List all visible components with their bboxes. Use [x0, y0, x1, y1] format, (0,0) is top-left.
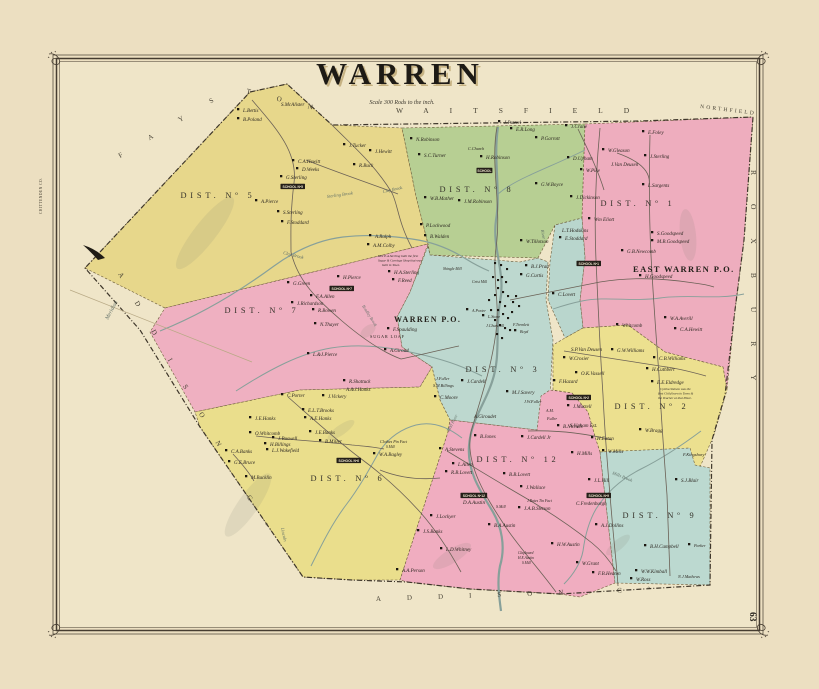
- building-marker: [664, 316, 666, 318]
- building-marker: [639, 274, 641, 276]
- owner-label: E.Stoddard: [564, 237, 588, 242]
- note-label: built in Town.: [382, 263, 400, 267]
- building-marker: [642, 130, 644, 132]
- building-marker: [575, 371, 577, 373]
- owner-label: A.M.Colby: [372, 244, 395, 249]
- owner-label: W.Pike: [586, 169, 601, 174]
- owner-label: J.Dickinson: [576, 196, 600, 201]
- owner-label: D.Weeks: [301, 168, 319, 173]
- building-marker: [551, 542, 553, 544]
- building-marker: [553, 379, 555, 381]
- building-marker: [272, 436, 274, 438]
- owner-label: A.Pierce: [260, 200, 279, 205]
- building-marker: [510, 127, 512, 129]
- building-marker: [466, 308, 468, 310]
- owner-label: W.Mills: [608, 450, 623, 455]
- owner-label: L.Allen: [457, 463, 473, 468]
- building-marker: [504, 327, 506, 329]
- owner-label: H.Pierce: [342, 276, 362, 281]
- building-marker: [497, 309, 499, 311]
- building-marker: [616, 323, 618, 325]
- building-marker: [506, 268, 508, 270]
- owner-label: S.Mill: [496, 504, 507, 509]
- owner-label: J.Vickery: [328, 395, 347, 400]
- building-marker: [602, 148, 604, 150]
- building-marker: [312, 308, 314, 310]
- owner-label: G.Curtis: [526, 274, 543, 279]
- building-marker: [518, 305, 520, 307]
- owner-label: J.E.Banks: [315, 431, 335, 436]
- owner-label: W.Tillotson: [526, 240, 549, 245]
- building-marker: [567, 156, 569, 158]
- owner-label: H.E.Austin: [517, 556, 534, 560]
- owner-label: S.M.Billings: [433, 383, 454, 388]
- owner-label: W.Gleason: [608, 149, 630, 154]
- building-marker: [387, 327, 389, 329]
- building-marker: [591, 436, 593, 438]
- owner-label: C.Fredenburgh: [576, 502, 607, 507]
- owner-label: W.B.Mather: [430, 197, 454, 202]
- building-marker: [488, 523, 490, 525]
- building-marker: [497, 279, 499, 281]
- school-label: SCHOOL Nº1: [577, 261, 602, 266]
- building-marker: [512, 301, 514, 303]
- building-marker: [424, 196, 426, 198]
- owner-label: J.Tucker: [349, 144, 366, 149]
- owner-label: W.A.Averill: [670, 317, 693, 322]
- building-marker: [504, 305, 506, 307]
- building-marker: [440, 547, 442, 549]
- building-marker: [651, 231, 653, 233]
- building-marker: [296, 167, 298, 169]
- building-marker: [580, 168, 582, 170]
- owner-label: J.M.Robinson: [464, 200, 492, 205]
- owner-label: P.Lockwood: [425, 224, 451, 229]
- owner-label: A.M.: [545, 408, 554, 413]
- svg-text:SCHOOL Nº12: SCHOOL Nº12: [463, 494, 485, 498]
- owner-label: S.P.Van Deusen: [571, 348, 603, 353]
- owner-label: M.J.Savery: [511, 391, 535, 396]
- owner-label: P.Garrott: [540, 137, 560, 142]
- building-marker: [571, 451, 573, 453]
- owner-label: N.Thayer: [319, 323, 339, 328]
- owner-label: S.McAlister: [281, 103, 305, 108]
- building-marker: [287, 281, 289, 283]
- building-marker: [611, 348, 613, 350]
- note-label: Mrs E.A.Sterling built the first: [377, 254, 418, 258]
- building-marker: [653, 356, 655, 358]
- building-marker: [651, 239, 653, 241]
- building-marker: [482, 314, 484, 316]
- owner-label: H.A.Sterling: [393, 271, 419, 276]
- owner-label: E.R.Long: [515, 128, 535, 133]
- owner-label: J.Crane: [571, 125, 588, 130]
- building-marker: [559, 236, 561, 238]
- building-marker: [507, 295, 509, 297]
- owner-label: S.C.Turner: [424, 154, 446, 159]
- owner-label: L.Stone: [487, 314, 500, 319]
- owner-label: E.L.T.Brooks: [307, 409, 334, 414]
- building-marker: [497, 287, 499, 289]
- owner-label: N.Robinson: [415, 138, 440, 143]
- building-marker: [474, 434, 476, 436]
- building-marker: [302, 408, 304, 410]
- owner-label: Boyd: [520, 329, 529, 334]
- owner-label: A.&J.Hanks: [345, 388, 370, 393]
- owner-label: C.Lovett: [558, 293, 576, 298]
- owner-label: F.Tremlett: [512, 322, 530, 327]
- district-label-5: DIST. Nº 5: [180, 191, 255, 200]
- svg-text:SCHOOL: SCHOOL: [477, 169, 491, 173]
- owner-label: A.Porter: [471, 308, 486, 313]
- owner-label: S.Sterling: [283, 211, 303, 216]
- building-marker: [445, 470, 447, 472]
- building-marker: [418, 153, 420, 155]
- building-marker: [501, 337, 503, 339]
- building-marker: [280, 175, 282, 177]
- building-marker: [452, 462, 454, 464]
- building-marker: [225, 449, 227, 451]
- building-marker: [499, 301, 501, 303]
- owner-label: L.D.Whitney: [445, 548, 472, 553]
- building-marker: [588, 217, 590, 219]
- owner-label: D.A.Austin: [462, 501, 485, 506]
- building-marker: [576, 561, 578, 563]
- building-marker: [567, 404, 569, 406]
- owner-label: L.Bettis: [242, 109, 258, 114]
- building-marker: [501, 276, 503, 278]
- school-label: SCHOOL Nº2: [567, 395, 592, 400]
- owner-label: C.Moore: [440, 396, 459, 401]
- owner-label: H.Robinson: [485, 156, 510, 161]
- district-label-12: DIST. Nº 12: [476, 455, 559, 464]
- building-marker: [277, 210, 279, 212]
- owner-label: J.Lockyer: [436, 515, 456, 520]
- owner-label: L.&J.Pierce: [312, 353, 338, 358]
- building-marker: [621, 249, 623, 251]
- owner-label: R.Bowen: [317, 309, 336, 314]
- owner-label: J.S.Banks: [423, 530, 442, 535]
- building-marker: [392, 278, 394, 280]
- owner-label: B.Jones: [480, 435, 496, 440]
- owner-label: C.A.Banks: [231, 450, 252, 455]
- building-marker: [304, 416, 306, 418]
- owner-label: B.Miller: [325, 440, 342, 445]
- owner-label: B.J.Pratt: [531, 265, 550, 270]
- building-marker: [266, 448, 268, 450]
- owner-label: B.B.Lovett: [509, 473, 531, 478]
- building-marker: [388, 270, 390, 272]
- owner-label: G.E.Bruce: [234, 461, 256, 466]
- school-label: SCHOOL: [477, 168, 493, 173]
- district-label-6: DIST. Nº 6: [310, 474, 385, 483]
- building-marker: [503, 472, 505, 474]
- owner-label: H.W.Austin: [556, 543, 580, 548]
- owner-label: F.Spaulding: [392, 328, 417, 333]
- note-label: Sugar & Carriage Shop that was: [378, 259, 422, 263]
- owner-label: J.A.B.Stetson: [524, 507, 551, 512]
- building-marker: [237, 117, 239, 119]
- building-marker: [458, 199, 460, 201]
- owner-label: A.Stevens: [444, 448, 464, 453]
- owner-label: M.Bucklin: [250, 476, 272, 481]
- owner-label: A.Giroud: [389, 349, 409, 354]
- owner-label: A.Giroudet: [473, 415, 497, 420]
- building-marker: [588, 478, 590, 480]
- owner-label: J.Wallace: [526, 486, 546, 491]
- building-marker: [373, 452, 375, 454]
- district-label-1: DIST. Nº 1: [600, 199, 675, 208]
- owner-label: A.Ralph: [374, 235, 392, 240]
- building-marker: [369, 149, 371, 151]
- building-marker: [291, 301, 293, 303]
- building-marker: [420, 223, 422, 225]
- owner-label: J.E.Hanks: [255, 417, 276, 422]
- building-marker: [281, 393, 283, 395]
- owner-label: F.Kingsbury: [682, 452, 705, 457]
- building-marker: [439, 447, 441, 449]
- owner-label: Fuller: [546, 416, 557, 421]
- building-marker: [514, 329, 516, 331]
- owner-label: N.J.Mathews: [677, 574, 700, 579]
- building-marker: [507, 317, 509, 319]
- owner-label: J.Van Deusen: [611, 163, 639, 168]
- building-marker: [642, 183, 644, 185]
- building-marker: [651, 380, 653, 382]
- owner-label: R.Buck: [358, 164, 374, 169]
- owner-label: H.Goodspeed: [644, 275, 673, 280]
- district-label-2: DIST. Nº 2: [614, 402, 689, 411]
- building-marker: [498, 120, 500, 122]
- owner-label: W.A.Bagley: [379, 453, 403, 458]
- building-marker: [367, 243, 369, 245]
- building-marker: [492, 276, 494, 278]
- building-marker: [499, 324, 501, 326]
- owner-label: O.Whitcomb: [255, 432, 281, 437]
- building-marker: [500, 264, 502, 266]
- owner-label: B.Nichols: [563, 425, 583, 430]
- owner-label: G.W.Boyce: [541, 183, 564, 188]
- owner-label: Clothes Pin Fact: [380, 439, 408, 444]
- building-marker: [249, 416, 251, 418]
- owner-label: J.Martell: [573, 405, 592, 410]
- building-marker: [644, 544, 646, 546]
- building-marker: [502, 291, 504, 293]
- building-marker: [520, 273, 522, 275]
- owner-label: J.W.Fuller: [524, 399, 542, 404]
- owner-label: W.Bragg: [645, 429, 663, 434]
- building-marker: [520, 239, 522, 241]
- building-marker: [639, 428, 641, 430]
- building-marker: [424, 234, 426, 236]
- building-marker: [322, 394, 324, 396]
- building-marker: [563, 356, 565, 358]
- owner-label: A.E.Hanks: [309, 417, 331, 422]
- building-marker: [245, 475, 247, 477]
- owner-label: B.A.Austin: [494, 524, 516, 529]
- svg-text:SCHOOL Nº5: SCHOOL Nº5: [283, 185, 304, 189]
- owner-label: F.Reed: [397, 279, 412, 284]
- owner-label: B.Poland: [243, 118, 262, 123]
- building-marker: [520, 485, 522, 487]
- building-marker: [384, 348, 386, 350]
- owner-label: J.Richardson: [297, 302, 324, 307]
- building-marker: [410, 137, 412, 139]
- building-marker: [630, 577, 632, 579]
- neighbor-waitsfield: WAITSFIELD: [396, 106, 650, 115]
- owner-label: E.Foley: [647, 131, 664, 136]
- owner-label: B.H.Campbell: [650, 545, 679, 550]
- district-label-8: DIST. Nº 8: [439, 185, 514, 194]
- county-chittenden: CHITTENDEN CO.: [39, 177, 43, 214]
- owner-label: W.Grant: [582, 562, 600, 567]
- owner-label: G.B.Newcomb: [627, 250, 656, 255]
- owner-label: C.Porter: [287, 394, 305, 399]
- svg-text:SCHOOL Nº9: SCHOOL Nº9: [589, 494, 610, 498]
- owner-label: W.Ross: [636, 578, 650, 583]
- warren-po-label: WARREN P.O.: [394, 315, 461, 324]
- building-marker: [635, 569, 637, 571]
- building-marker: [496, 333, 498, 335]
- building-marker: [281, 220, 283, 222]
- owner-label: G.W.Williams: [617, 349, 644, 354]
- owner-label: W.Crosier: [569, 357, 589, 362]
- owner-label: Shingle Mill: [443, 267, 462, 271]
- owner-label: J.Sterling: [650, 155, 670, 160]
- owner-label: D.Upham: [572, 157, 593, 162]
- owner-label: Wm Eliott: [594, 218, 615, 223]
- school-label: SCHOOL Nº5: [281, 184, 306, 189]
- building-marker: [646, 367, 648, 369]
- building-marker: [292, 159, 294, 161]
- owner-label: J.Cardell: [467, 380, 486, 385]
- building-marker: [552, 292, 554, 294]
- building-marker: [535, 182, 537, 184]
- owner-label: H.Billings: [269, 443, 290, 448]
- atlas-page: WARREN WARREN Scale 300 Rods to the inch…: [0, 0, 819, 689]
- owner-label: L.Sargents: [647, 184, 669, 189]
- building-marker: [237, 108, 239, 110]
- building-marker: [557, 424, 559, 426]
- building-marker: [675, 478, 677, 480]
- building-marker: [353, 163, 355, 165]
- building-marker: [307, 352, 309, 354]
- building-marker: [343, 143, 345, 145]
- owner-label: J.Puttrel: [504, 121, 522, 126]
- owner-label: L.J.Wakefield: [271, 449, 300, 454]
- school-label: SCHOOL Nº9: [587, 493, 612, 498]
- school-label: SCHOOL Nº7: [330, 286, 355, 291]
- building-marker: [509, 329, 511, 331]
- school-label: SCHOOL Nº6: [337, 458, 362, 463]
- building-marker: [502, 313, 504, 315]
- building-marker: [688, 543, 690, 545]
- building-marker: [480, 155, 482, 157]
- svg-text:SCHOOL Nº7: SCHOOL Nº7: [332, 287, 353, 291]
- owner-label: L.T.Hodskins: [561, 229, 588, 234]
- owner-label: W.W.Kimball: [641, 570, 668, 575]
- building-marker: [644, 154, 646, 156]
- building-marker: [494, 262, 496, 264]
- building-marker: [417, 529, 419, 531]
- page-title: WARREN: [316, 56, 484, 91]
- owner-label: Clapboard: [518, 551, 534, 555]
- district-label-9: DIST. Nº 9: [622, 511, 697, 520]
- svg-text:SCHOOL Nº2: SCHOOL Nº2: [569, 396, 590, 400]
- building-marker: [565, 124, 567, 126]
- building-marker: [511, 311, 513, 313]
- owner-label: G.Green: [293, 282, 311, 287]
- owner-label: F.Hazard: [558, 380, 578, 385]
- building-marker: [314, 322, 316, 324]
- school-label: SCHOOL Nº12: [461, 493, 488, 498]
- owner-label: J.L.Hill: [594, 479, 610, 484]
- owner-label: G.Sterling: [286, 176, 307, 181]
- building-marker: [490, 309, 492, 311]
- owner-label: C.Church: [468, 146, 484, 151]
- owner-label: A.J.Dollins: [600, 524, 624, 529]
- owner-label: F.B.Heaton: [597, 572, 621, 577]
- neighbor-roxbury: ROXBURY: [749, 170, 758, 409]
- page-number: 63: [747, 612, 757, 622]
- owner-label: J.Cardell Jr: [527, 436, 551, 441]
- building-marker: [310, 294, 312, 296]
- building-marker: [535, 136, 537, 138]
- building-marker: [319, 439, 321, 441]
- owner-label: F.A.Allen: [315, 295, 335, 300]
- building-marker: [515, 295, 517, 297]
- owner-label: S.Mill: [522, 561, 531, 565]
- owner-label: J.Fuller: [436, 376, 450, 381]
- owner-label: S.Mill: [386, 445, 395, 449]
- warren-map-canvas: WARREN WARREN Scale 300 Rods to the inch…: [0, 0, 819, 689]
- building-marker: [674, 327, 676, 329]
- owner-label: C.A.Hewitt: [680, 328, 703, 333]
- svg-text:SCHOOL Nº6: SCHOOL Nº6: [339, 459, 360, 463]
- owner-label: E.E.Eldredge: [656, 381, 685, 386]
- building-marker: [396, 568, 398, 570]
- building-marker: [525, 264, 527, 266]
- note-label: the Teacher at that Place.: [658, 396, 692, 400]
- owner-label: H.Eaton: [596, 437, 614, 442]
- building-marker: [249, 431, 251, 433]
- note-label: Cyntha Stetson was the: [660, 387, 691, 391]
- building-marker: [592, 571, 594, 573]
- owner-label: F.Stoddard: [286, 221, 309, 226]
- owner-label: J.Hewitt: [375, 150, 392, 155]
- east-warren-po-label: EAST WARREN P.O.: [633, 264, 735, 274]
- owner-label: H.Mills: [576, 452, 592, 457]
- building-marker: [494, 294, 496, 296]
- owner-label: SUGAR LOAF: [370, 334, 405, 339]
- district-label-3: DIST. Nº 3: [465, 365, 540, 374]
- building-marker: [309, 430, 311, 432]
- building-marker: [570, 195, 572, 197]
- building-marker: [228, 460, 230, 462]
- owner-label: O.K.Vassell: [581, 372, 605, 377]
- owner-label: S.Goodspeed: [657, 232, 684, 237]
- owner-label: Grist Mill: [472, 280, 487, 284]
- building-marker: [494, 319, 496, 321]
- district-label-7: DIST. Nº 7: [224, 306, 299, 315]
- building-marker: [369, 234, 371, 236]
- owner-label: R.Shattuck: [348, 380, 371, 385]
- building-marker: [337, 275, 339, 277]
- owner-label: R.B.Lovett: [450, 471, 473, 476]
- owner-label: B.Walden: [430, 235, 450, 240]
- owner-label: Whitcomb: [622, 324, 643, 329]
- building-marker: [505, 281, 507, 283]
